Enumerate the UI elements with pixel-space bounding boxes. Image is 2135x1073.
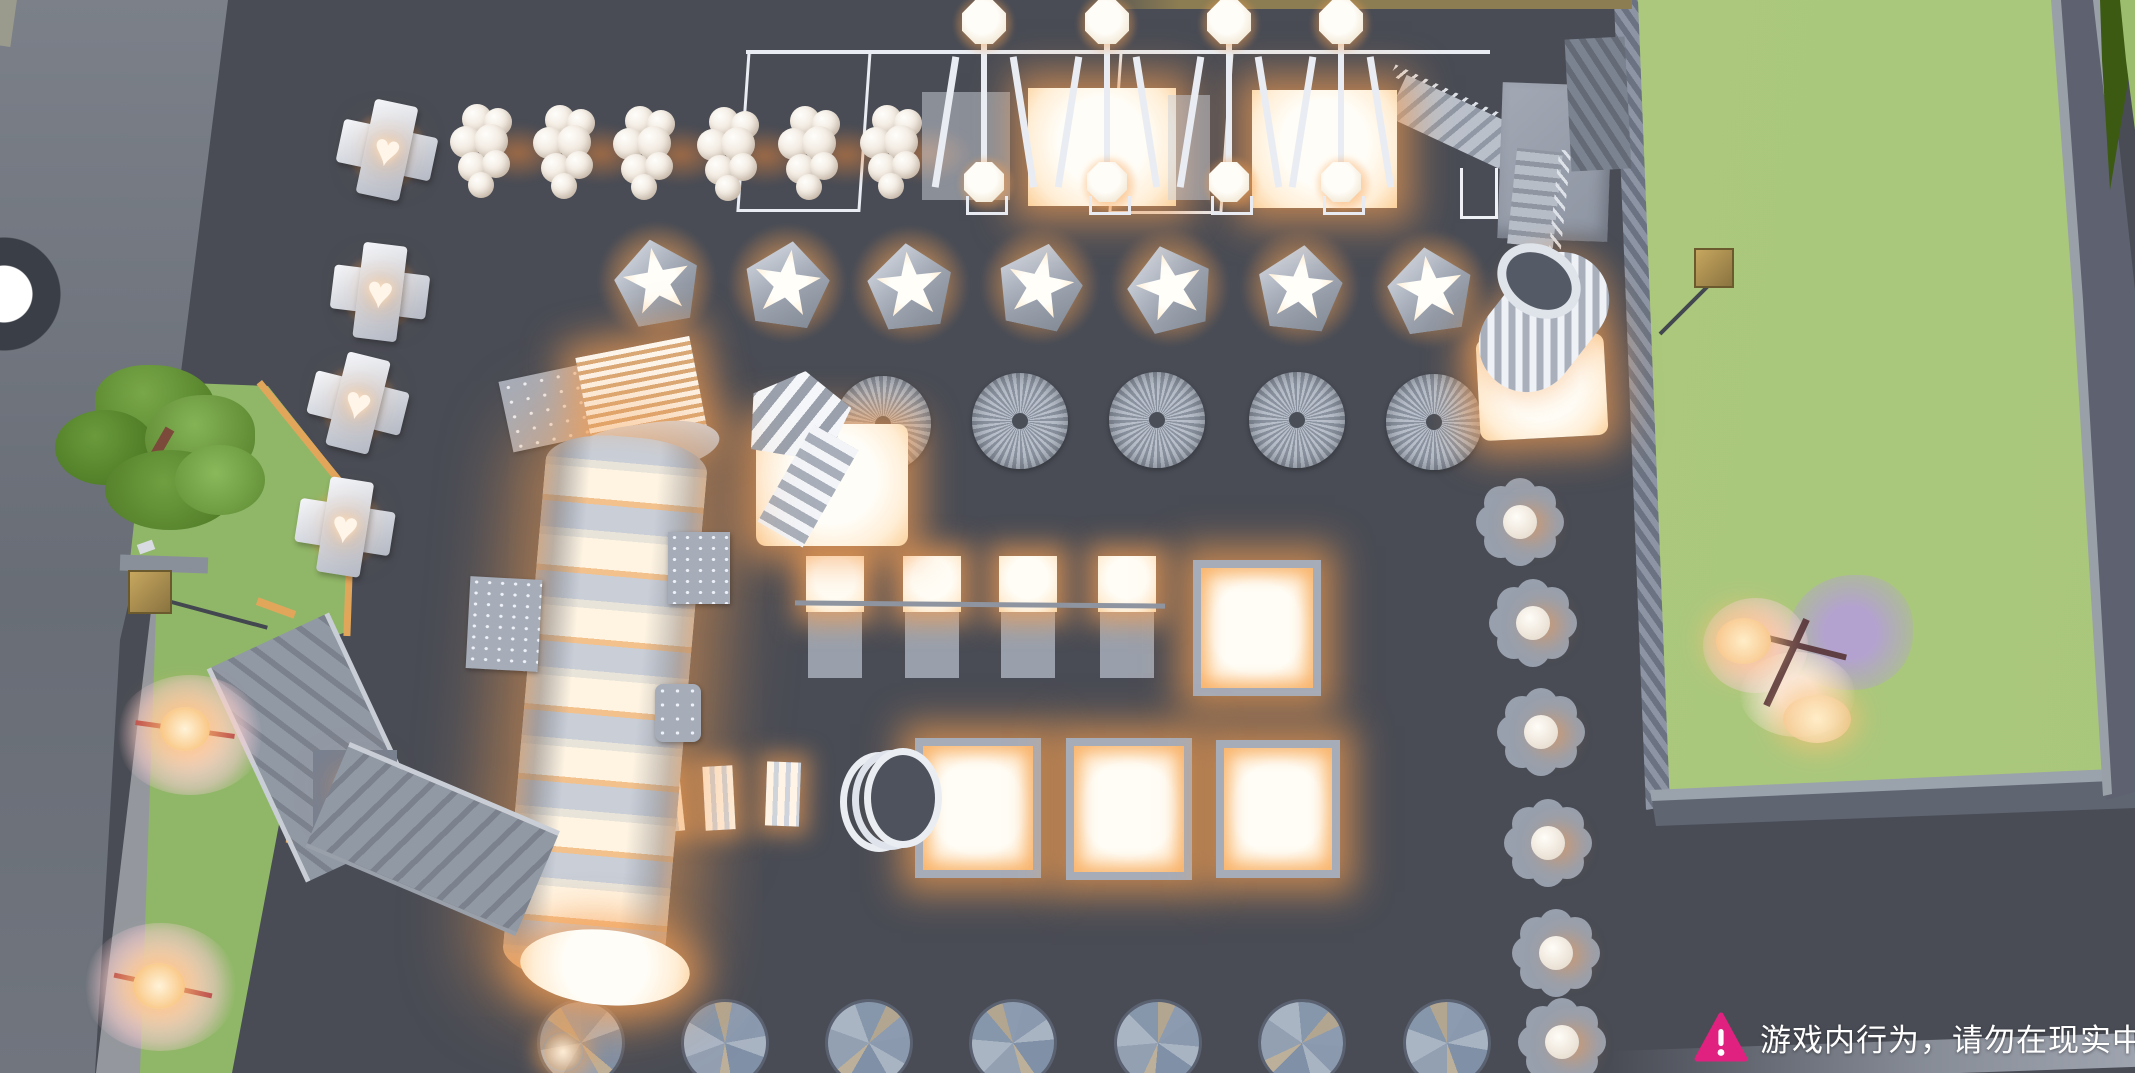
glow-star-tile[interactable]: [601, 225, 712, 336]
spinner-disk[interactable]: [1387, 983, 1507, 1073]
glow-blossom: [160, 707, 210, 751]
glow-block[interactable]: [702, 765, 735, 830]
spinner-disk[interactable]: [537, 999, 625, 1073]
flower-pad[interactable]: [1514, 994, 1610, 1073]
ring-stack[interactable]: [840, 748, 950, 844]
glow-block[interactable]: [765, 761, 801, 826]
spinner-disk[interactable]: [1254, 995, 1349, 1073]
sphere: [878, 173, 904, 199]
foliage: [175, 445, 265, 515]
pink-glow-tree: [105, 665, 275, 805]
spinner-disk[interactable]: [818, 992, 920, 1073]
dotted-panel[interactable]: [466, 576, 543, 672]
pink-glow-tree: [75, 915, 245, 1060]
spinner-disk[interactable]: [959, 989, 1067, 1073]
seesaw-panel[interactable]: [1100, 560, 1154, 678]
safety-warning-text: 游戏内行为，请勿在现实中: [1760, 1015, 2135, 1060]
heart-light: ♥: [321, 110, 454, 191]
heart-light: ♥: [315, 257, 445, 328]
flower-pad[interactable]: [1485, 575, 1581, 671]
dome-light: [1545, 1025, 1579, 1059]
heart-lamp-pedestal[interactable]: ♥: [274, 456, 416, 598]
dome-light: [1539, 936, 1573, 970]
spiro-tower[interactable]: [1386, 374, 1482, 470]
swing-lamp-unit[interactable]: [1184, 0, 1274, 215]
glow-square[interactable]: [1216, 740, 1340, 878]
flower-pad[interactable]: [1493, 684, 1589, 780]
glow-square[interactable]: [1066, 738, 1192, 880]
glow-star-tile[interactable]: [733, 229, 841, 337]
heart-light: ♥: [279, 490, 410, 565]
swing-lamp-unit[interactable]: [1296, 0, 1386, 215]
sphere: [631, 174, 657, 200]
dome-light: [1524, 715, 1558, 749]
frame-bracket: [1089, 196, 1131, 215]
frame-bracket: [1211, 196, 1253, 215]
spinner-disk[interactable]: [1097, 982, 1220, 1073]
glow-star-tile[interactable]: [1376, 235, 1484, 343]
glow-wedge: [542, 1032, 584, 1072]
sphere-cluster-lamp[interactable]: [605, 102, 681, 206]
sphere-cluster-lamp[interactable]: [689, 103, 765, 207]
seesaw-panel[interactable]: [905, 560, 959, 678]
street-lamp-head[interactable]: [128, 570, 172, 614]
glow-blossom: [1716, 618, 1771, 664]
seesaw-panel[interactable]: [808, 560, 862, 678]
dome-light: [1531, 826, 1565, 860]
sphere-cluster-lamp[interactable]: [442, 100, 518, 204]
spiro-tower[interactable]: [972, 373, 1068, 469]
game-viewport[interactable]: ♥♥♥♥ ♥: [0, 0, 2135, 1073]
flower-dot-pad[interactable]: [655, 684, 701, 742]
glow-star-tile[interactable]: [983, 228, 1097, 342]
dotted-panel[interactable]: [668, 532, 730, 604]
safety-warning: 游戏内行为，请勿在现实中: [1694, 1012, 2135, 1062]
spinner-disk[interactable]: [663, 981, 787, 1073]
flower-pad[interactable]: [1508, 905, 1604, 1001]
glow-square[interactable]: [1193, 560, 1321, 696]
cherry-blossom-tree: [1688, 560, 1918, 760]
sphere-cluster-lamp[interactable]: [525, 101, 601, 205]
spiro-tower[interactable]: [1249, 372, 1345, 468]
sphere: [468, 172, 494, 198]
frame-bracket: [966, 196, 1008, 215]
play-objects-layer: ♥♥♥♥: [0, 0, 2135, 1073]
ring: [864, 748, 942, 848]
street-lamp-head[interactable]: [1694, 248, 1734, 288]
glow-blossom: [1783, 695, 1851, 743]
sphere: [796, 174, 822, 200]
dome-light: [1503, 505, 1537, 539]
swing-lamp-unit[interactable]: [939, 0, 1029, 215]
dome-light: [1516, 606, 1550, 640]
flower-pad[interactable]: [1472, 474, 1568, 570]
sphere-cluster-lamp[interactable]: [852, 101, 928, 205]
swing-lamp-unit[interactable]: [1062, 0, 1152, 215]
glow-star-tile[interactable]: [1247, 234, 1353, 340]
spiro-tower[interactable]: [1109, 372, 1205, 468]
glow-blossom: [133, 963, 185, 1009]
warning-triangle-icon: [1694, 1012, 1748, 1062]
glow-star-tile[interactable]: [857, 232, 963, 338]
flower-pad[interactable]: [1500, 795, 1596, 891]
sphere: [715, 175, 741, 201]
glow-star-tile[interactable]: [1112, 229, 1228, 345]
sphere: [551, 173, 577, 199]
green-tree: [55, 355, 280, 570]
frame-bracket: [1323, 196, 1365, 215]
heart-lamp-pedestal[interactable]: ♥: [313, 76, 460, 223]
sphere-cluster-lamp[interactable]: [770, 102, 846, 206]
seesaw-panel[interactable]: [1001, 560, 1055, 678]
